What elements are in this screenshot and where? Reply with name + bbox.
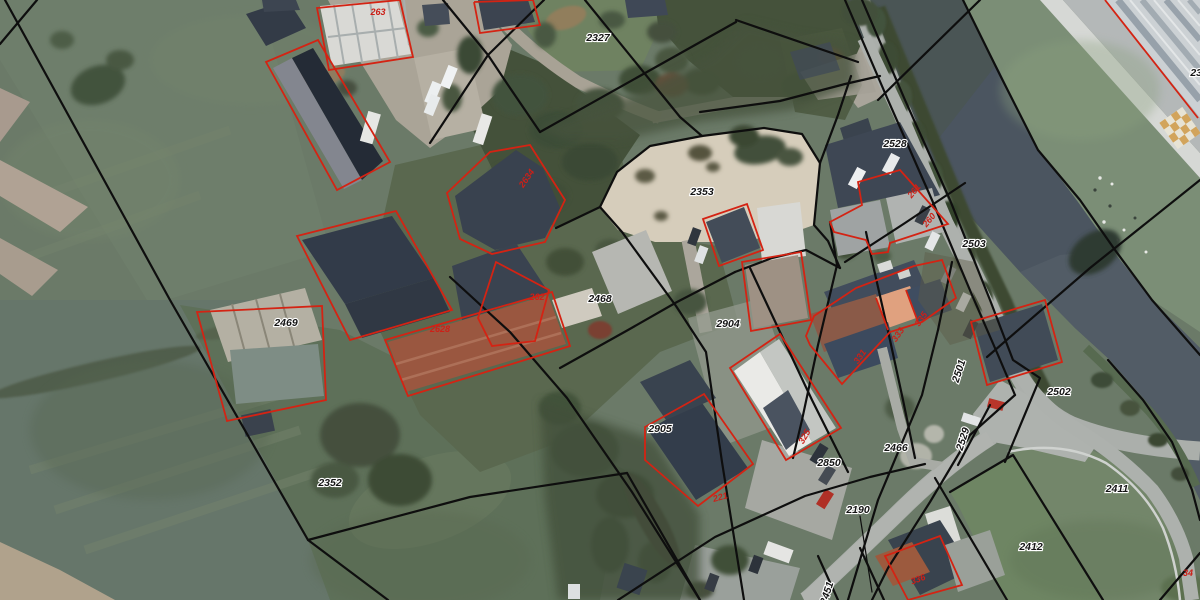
svg-text:2466: 2466: [883, 442, 908, 454]
svg-text:2528: 2528: [882, 138, 907, 150]
svg-text:2353: 2353: [689, 186, 714, 198]
svg-text:2327: 2327: [585, 32, 611, 44]
svg-text:2628: 2628: [429, 324, 450, 334]
svg-text:2352: 2352: [317, 477, 342, 489]
svg-text:2503: 2503: [961, 238, 986, 250]
svg-text:2850: 2850: [816, 457, 841, 469]
svg-text:2502: 2502: [1046, 386, 1071, 398]
svg-text:2469: 2469: [273, 317, 298, 329]
svg-text:2904: 2904: [715, 318, 740, 330]
svg-text:2412: 2412: [1018, 541, 1043, 553]
svg-text:262: 262: [528, 292, 544, 302]
svg-text:2190: 2190: [845, 504, 870, 516]
svg-text:263: 263: [369, 7, 385, 17]
svg-text:2332: 2332: [1189, 67, 1200, 79]
svg-text:2411: 2411: [1105, 483, 1129, 495]
svg-text:2468: 2468: [587, 293, 612, 305]
svg-text:2905: 2905: [647, 423, 672, 435]
svg-text:34: 34: [1183, 568, 1193, 578]
